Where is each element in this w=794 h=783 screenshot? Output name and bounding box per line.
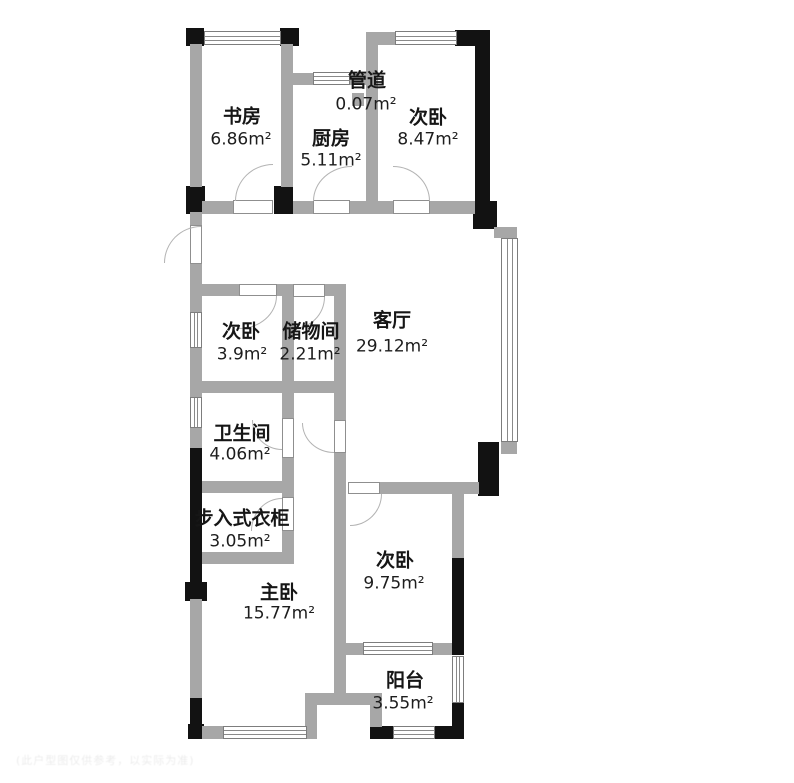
door-swing-arc <box>164 226 201 263</box>
room-label-living-room: 客厅 <box>373 312 411 331</box>
room-area-balcony: 3.55m² <box>372 696 433 713</box>
door-leaf <box>313 200 350 214</box>
room-area-bedroom-top: 8.47m² <box>397 132 458 149</box>
door-swing-arc <box>393 166 430 201</box>
window <box>452 656 464 703</box>
window <box>204 31 281 45</box>
wall-segment <box>293 73 313 85</box>
column <box>473 201 497 229</box>
room-area-study: 6.86m² <box>210 132 271 149</box>
door-leaf <box>348 482 380 494</box>
room-label-bedroom-top: 次卧 <box>409 109 447 128</box>
door-leaf <box>334 420 346 453</box>
wall-segment <box>501 442 517 454</box>
wall-segment <box>202 552 294 564</box>
wall-segment <box>366 32 398 45</box>
wall-segment <box>452 494 464 558</box>
wall-segment <box>190 427 202 448</box>
wall-segment <box>190 381 346 393</box>
wall-segment <box>350 201 393 214</box>
room-area-master-bedroom: 15.77m² <box>243 606 315 623</box>
door-leaf <box>293 284 325 297</box>
wall-segment <box>430 201 475 214</box>
watermark: (此户型图仅供参考，以实际为准) <box>16 752 195 768</box>
window <box>393 726 435 739</box>
wall-segment <box>380 482 479 494</box>
wall-segment <box>433 643 452 655</box>
shear-wall <box>452 558 464 655</box>
wall-segment <box>202 284 239 296</box>
column <box>478 442 499 496</box>
room-label-balcony: 阳台 <box>386 672 424 691</box>
wall-segment <box>293 201 313 214</box>
room-area-living-room: 29.12m² <box>356 339 428 356</box>
room-label-bathroom: 卫生间 <box>213 425 270 444</box>
wall-segment <box>366 45 378 201</box>
wall-segment <box>281 44 293 187</box>
window <box>223 726 307 739</box>
shear-wall <box>475 44 490 202</box>
wall-segment <box>334 643 363 655</box>
room-area-bedroom-left: 3.9m² <box>217 347 267 364</box>
column <box>370 726 394 739</box>
shear-wall <box>435 726 464 739</box>
window <box>501 238 518 442</box>
wall-segment <box>190 44 202 187</box>
window <box>313 72 350 85</box>
room-area-duct: 0.07m² <box>335 97 396 114</box>
wall-segment <box>202 726 223 739</box>
room-area-walk-in-closet: 3.05m² <box>209 534 270 551</box>
room-area-kitchen: 5.11m² <box>300 153 361 170</box>
room-label-kitchen: 厨房 <box>312 130 350 149</box>
wall-segment <box>190 262 202 314</box>
wall-segment <box>190 212 202 226</box>
column <box>274 186 293 214</box>
wall-segment <box>190 599 202 698</box>
door-swing-arc <box>313 166 352 201</box>
window <box>363 642 433 655</box>
door-leaf <box>282 418 294 458</box>
door-swing-arc <box>302 423 334 453</box>
wall-segment <box>305 693 382 705</box>
room-label-bedroom-bottom: 次卧 <box>376 552 414 571</box>
room-label-walk-in-closet: 步入式衣柜 <box>194 510 289 529</box>
wall-segment <box>334 453 346 695</box>
window <box>395 31 457 45</box>
room-label-duct: 管道 <box>348 72 386 91</box>
door-leaf <box>233 200 273 214</box>
room-label-study: 书房 <box>223 108 261 127</box>
floor-plan: 书房 6.86m² 厨房 5.11m² 管道 0.07m² 次卧 8.47m² … <box>0 0 794 783</box>
room-area-bathroom: 4.06m² <box>209 447 270 464</box>
room-label-master-bedroom: 主卧 <box>260 584 298 603</box>
window <box>190 312 202 348</box>
room-area-bedroom-bottom: 9.75m² <box>363 576 424 593</box>
door-swing-arc <box>350 494 382 526</box>
room-label-bedroom-left: 次卧 <box>222 323 260 342</box>
door-swing-arc <box>235 164 273 201</box>
window <box>190 397 202 428</box>
wall-segment <box>494 227 517 238</box>
wall-segment <box>202 201 233 214</box>
room-area-storage: 2.21m² <box>279 347 340 364</box>
door-leaf <box>239 284 277 296</box>
door-leaf <box>393 200 430 214</box>
wall-segment <box>202 481 294 493</box>
room-label-storage: 储物间 <box>282 323 339 342</box>
